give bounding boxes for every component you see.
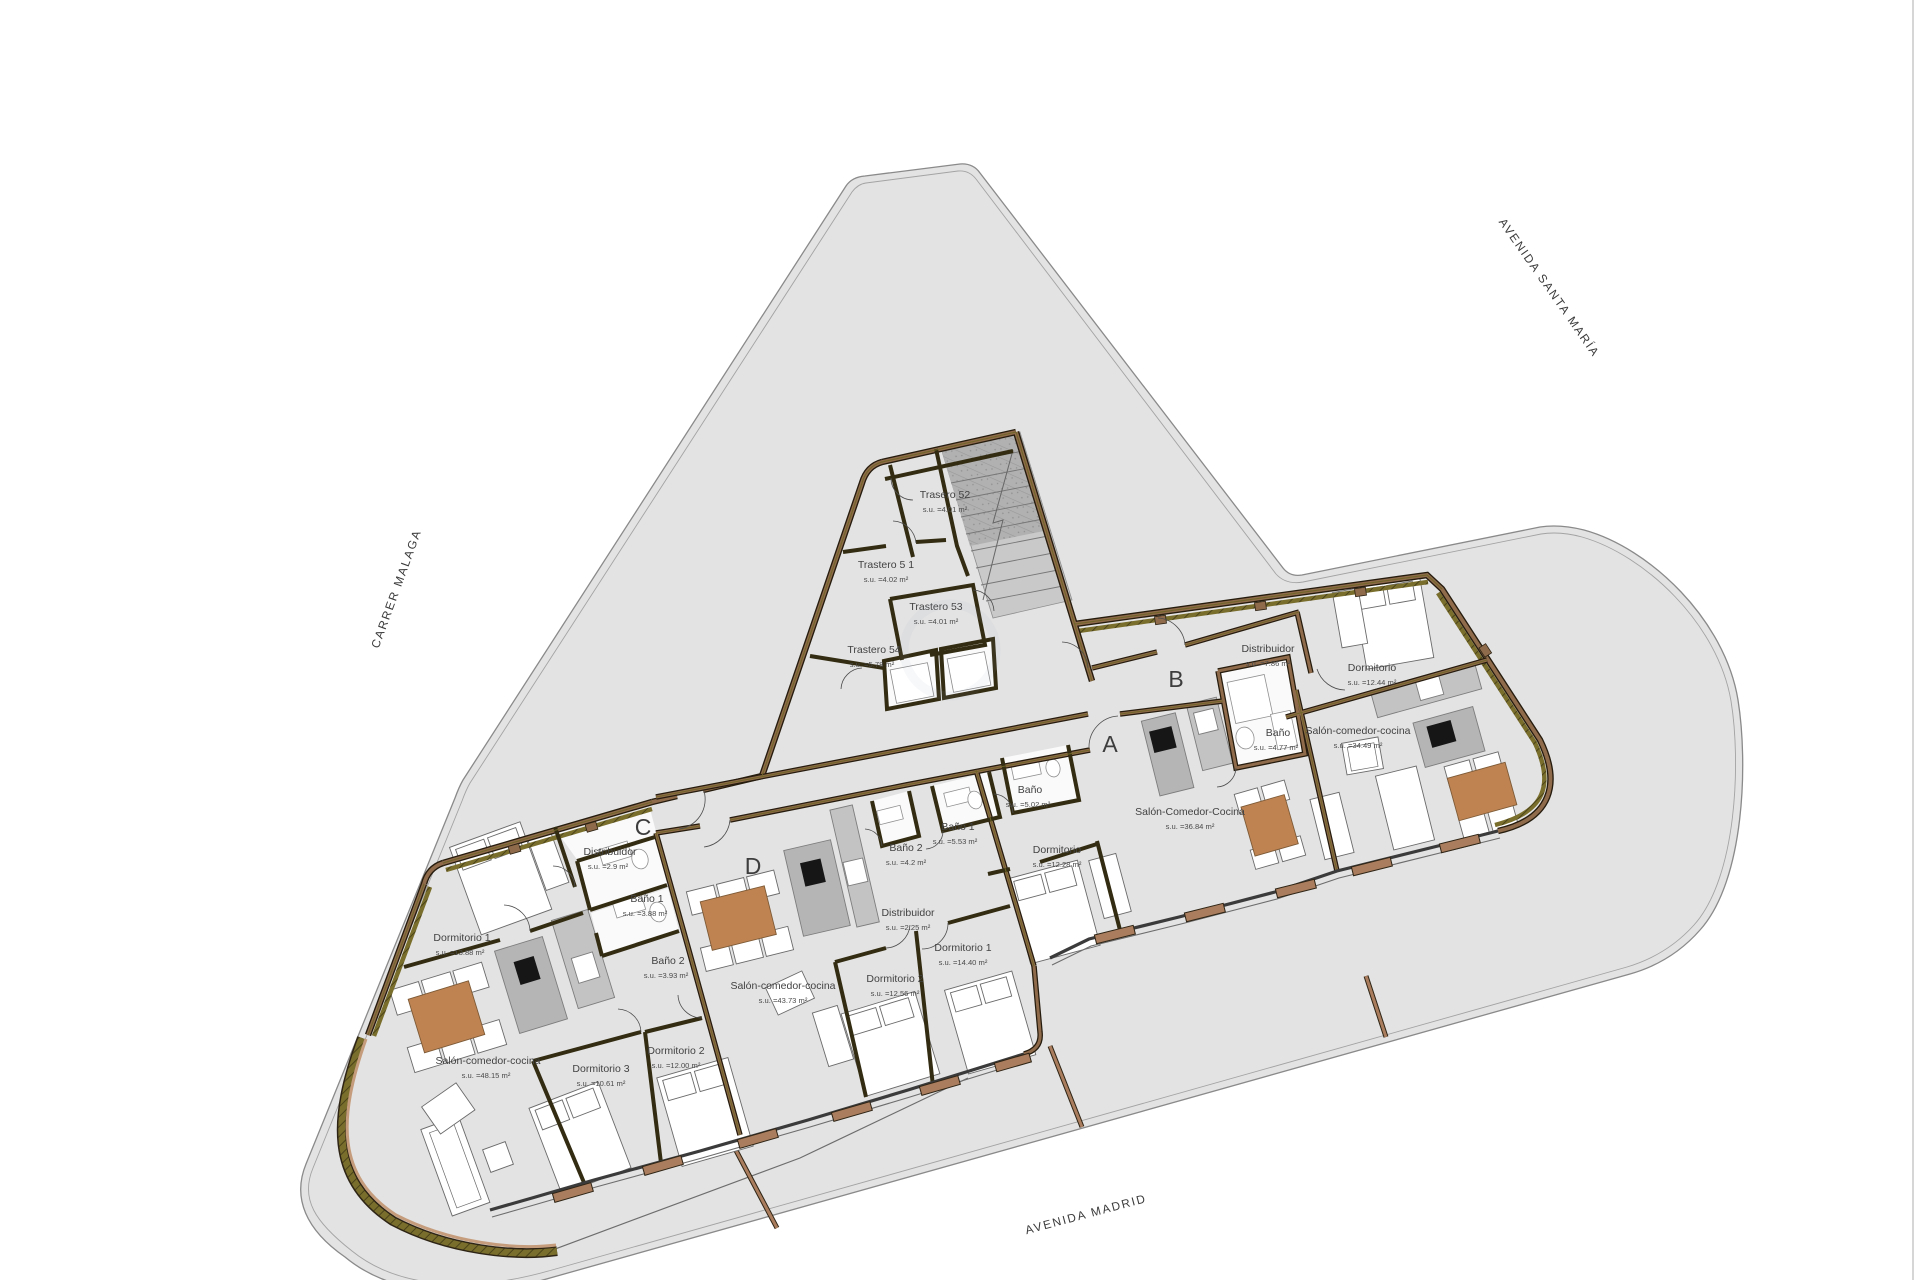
svg-text:Dormitorio 1: Dormitorio 1 [934,942,991,954]
svg-text:s.u. =43.73 m²: s.u. =43.73 m² [759,996,808,1005]
svg-text:s.u. =5.78 m²: s.u. =5.78 m² [850,660,895,669]
svg-text:Baño 1: Baño 1 [941,821,974,833]
svg-text:Distribuidor: Distribuidor [1241,643,1295,655]
svg-text:s.u. =3.88 m²: s.u. =3.88 m² [623,909,668,918]
svg-text:Salón-comedor-cocina: Salón-comedor-cocina [435,1055,540,1067]
svg-text:Dormitorio: Dormitorio [1033,844,1082,856]
svg-text:B: B [1168,666,1183,692]
svg-text:Dormitorio 2: Dormitorio 2 [647,1045,704,1057]
svg-text:Baño 2: Baño 2 [651,955,684,967]
svg-text:s.u. =4.77 m²: s.u. =4.77 m² [1254,743,1299,752]
svg-text:A: A [1102,731,1118,757]
svg-text:s.u. =4.2 m²: s.u. =4.2 m² [886,858,927,867]
svg-text:s.u. =12.56 m²: s.u. =12.56 m² [871,989,920,998]
svg-text:s.u. =4.01 m²: s.u. =4.01 m² [923,505,968,514]
svg-text:s.u. =10.61 m²: s.u. =10.61 m² [577,1079,626,1088]
svg-text:s.u. =12.00 m²: s.u. =12.00 m² [652,1061,701,1070]
svg-text:Baño 2: Baño 2 [889,842,922,854]
svg-text:Distribuidor: Distribuidor [583,846,637,858]
svg-text:s.u. =12.44 m²: s.u. =12.44 m² [1348,678,1397,687]
svg-text:s.u. =13.88 m²: s.u. =13.88 m² [436,948,485,957]
svg-text:D: D [745,853,762,879]
svg-text:Trastero 5 1: Trastero 5 1 [858,559,914,571]
svg-text:s.u. =2.25 m²: s.u. =2.25 m² [886,923,931,932]
svg-text:s.u. =4.02 m²: s.u. =4.02 m² [864,575,909,584]
svg-text:s.u. =7.86 m²: s.u. =7.86 m² [1246,659,1291,668]
svg-text:s.u. =2.9 m²: s.u. =2.9 m² [588,862,629,871]
svg-text:Dormitorio 1: Dormitorio 1 [433,932,490,944]
svg-text:s.u. =34.49 m²: s.u. =34.49 m² [1334,741,1383,750]
svg-text:Dormitorio: Dormitorio [1348,662,1397,674]
svg-text:Baño 1: Baño 1 [630,893,663,905]
svg-text:s.u. =5.02 m²: s.u. =5.02 m² [1006,800,1051,809]
svg-text:s.u. =14.40 m²: s.u. =14.40 m² [939,958,988,967]
svg-text:Distribuidor: Distribuidor [881,907,935,919]
svg-text:Trasero 52: Trasero 52 [920,489,971,501]
svg-text:s.u. =3.93 m²: s.u. =3.93 m² [644,971,689,980]
svg-text:s.u. =12.28 m²: s.u. =12.28 m² [1033,860,1082,869]
svg-text:s.u. =48.15 m²: s.u. =48.15 m² [462,1071,511,1080]
svg-text:Dormitorio 3: Dormitorio 3 [572,1063,629,1075]
svg-text:s.u. =5.53 m²: s.u. =5.53 m² [933,837,978,846]
svg-text:Trastero 54: Trastero 54 [847,644,900,656]
svg-text:Salón-Comedor-Cocina: Salón-Comedor-Cocina [1135,806,1245,818]
svg-text:C: C [635,814,652,840]
svg-text:Baño: Baño [1266,727,1291,739]
svg-text:s.u. =36.84 m²: s.u. =36.84 m² [1166,822,1215,831]
svg-text:Salón-comedor-cocina: Salón-comedor-cocina [1305,725,1410,737]
svg-text:Salón-comedor-cocina: Salón-comedor-cocina [730,980,835,992]
svg-text:Dormitorio 2: Dormitorio 2 [866,973,923,985]
svg-text:Baño: Baño [1018,784,1043,796]
